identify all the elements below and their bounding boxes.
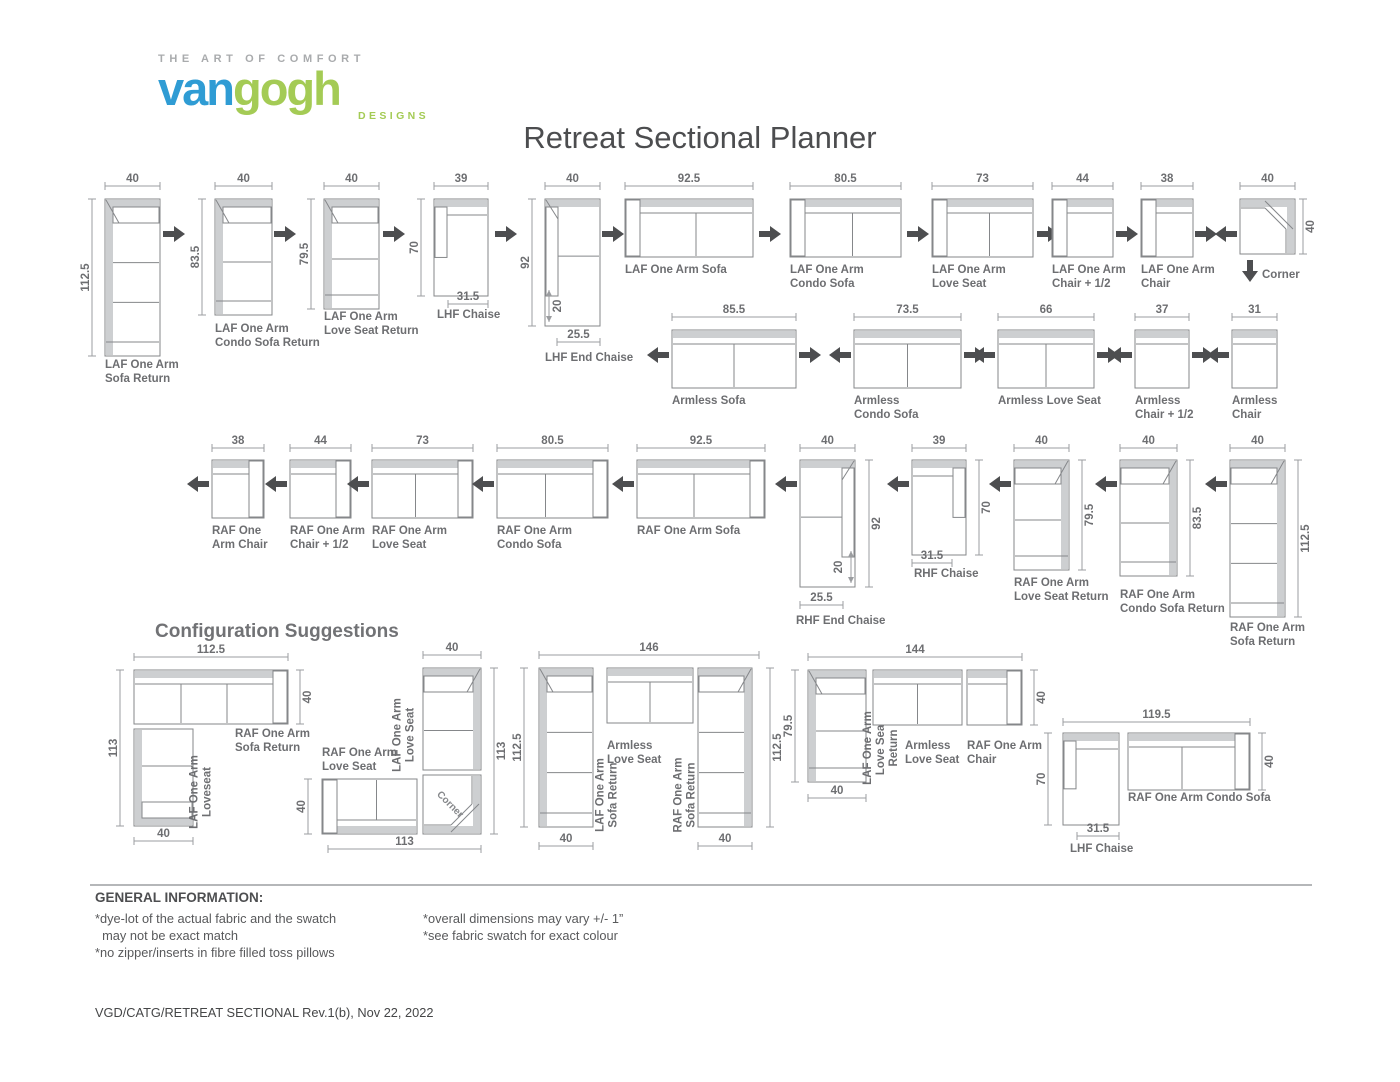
piece-label: RAF One Arm Condo Sofa: [1128, 792, 1271, 804]
piece-label: Chair: [1141, 278, 1171, 290]
flow-arrow-left-icon: [187, 476, 209, 492]
piece-label: LAF One Arm Sofa: [625, 264, 727, 276]
dimension-label: 44: [1076, 173, 1089, 185]
dimension-label: 40: [566, 173, 579, 185]
piece-raf-one-arm-chair: 38RAF OneArm Chair: [187, 435, 268, 551]
dimension-label: 144: [905, 644, 925, 656]
piece-label: Love Seat: [905, 754, 959, 766]
piece-label: Love Seat: [875, 721, 887, 775]
flow-arrow-left-icon: [829, 347, 851, 363]
dimension-label: 38: [1161, 173, 1174, 185]
piece-label: RAF One Arm: [322, 747, 397, 759]
piece-label: LAF One Arm: [932, 264, 1006, 276]
piece-label: Love Seat Return: [1014, 591, 1109, 603]
dimension-label: 73: [416, 435, 429, 447]
piece-armless-condo-sofa: 73.5ArmlessCondo Sofa: [829, 304, 986, 421]
dimension-label: 70: [981, 501, 993, 514]
flow-arrow-right-icon: [907, 226, 929, 242]
dimension-label: 112.5: [512, 733, 524, 762]
piece-raf-one-arm-condo-sofa: 80.5RAF One ArmCondo Sofa: [472, 435, 608, 551]
piece-label: Condo Sofa: [854, 409, 919, 421]
dimension-label: 31.5: [921, 550, 944, 562]
piece-cfg4-raf-chair: 40RAF One ArmChair: [967, 670, 1048, 766]
dimension-label: 40: [1035, 435, 1048, 447]
info-line: *no zipper/inserts in fibre filled toss …: [95, 944, 336, 961]
dimension-label: 80.5: [834, 173, 857, 185]
piece-cfg5-raf-condo-sofa: 40RAF One Arm Condo Sofa: [1128, 733, 1276, 804]
dimension-label: 40: [302, 691, 314, 704]
piece-label: LAF One Arm: [862, 711, 874, 785]
flow-arrow-left-icon: [775, 476, 797, 492]
dimension-label: 92: [871, 517, 883, 530]
piece-label: Chair + 1/2: [290, 539, 349, 551]
flow-arrow-left-icon: [887, 476, 909, 492]
dimension-label: 20: [552, 300, 564, 313]
piece-raf-one-arm-love-seat-return: 4079.5RAF One ArmLove Seat Return: [989, 435, 1109, 603]
dimension-label: 113: [496, 742, 508, 761]
dimension-label: 70: [1036, 773, 1048, 786]
piece-label: Sofa Return: [105, 373, 170, 385]
flow-arrow-right-icon: [274, 226, 296, 242]
piece-label: Love Seat: [405, 708, 417, 762]
flow-arrow-down-icon: [1242, 260, 1258, 282]
dimension-label: 40: [446, 642, 459, 654]
dimension-label: 92: [520, 256, 532, 269]
flow-arrow-left-icon: [1215, 226, 1237, 242]
piece-label: Condo Sofa: [790, 278, 855, 290]
piece-laf-one-arm-love-seat-return: 4079.5LAF One ArmLove Seat Return: [299, 173, 419, 337]
piece-label: Love Seat: [607, 754, 661, 766]
dimension-label: 83.5: [1192, 506, 1204, 529]
piece-label: RAF One Arm Sofa: [637, 525, 741, 537]
dimension-label: 40: [1036, 691, 1048, 704]
configuration-suggestions-heading: Configuration Suggestions: [155, 621, 399, 642]
piece-corner: 4040Corner: [1240, 173, 1317, 282]
piece-label: Condo Sofa Return: [215, 337, 320, 349]
piece-label: LHF End Chaise: [545, 352, 633, 364]
piece-label: Condo Sofa: [497, 539, 562, 551]
dimension-label: 112.5: [197, 644, 226, 656]
info-line: *overall dimensions may vary +/- 1”: [423, 910, 623, 927]
piece-label: LAF One Arm: [215, 323, 289, 335]
piece-cfg1-laf-loveseat: LAF One ArmLoveseat: [134, 729, 214, 829]
piece-label: LHF Chaise: [1070, 843, 1133, 855]
piece-rhf-end-chaise: 40922025.5RHF End Chaise: [775, 435, 885, 627]
flow-arrow-left-icon: [472, 476, 494, 492]
piece-armless-chair: 31ArmlessChair: [1207, 304, 1277, 421]
dimension-label: 40: [1261, 173, 1274, 185]
flow-arrow-left-icon: [1110, 347, 1132, 363]
dimension-label: 40: [1264, 755, 1276, 768]
piece-label: RHF End Chaise: [796, 615, 885, 627]
piece-label: Chair + 1/2: [1135, 409, 1194, 421]
piece-label: RAF One Arm: [1120, 589, 1195, 601]
piece-label: LAF One Arm: [105, 359, 179, 371]
piece-label: Sofa Return: [235, 742, 300, 754]
dimension-label: 79.5: [299, 242, 311, 265]
dimension-label: 40: [1251, 435, 1264, 447]
flow-arrow-right-icon: [383, 226, 405, 242]
dimension-label: 40: [1305, 220, 1317, 233]
dimension-label: 40: [719, 833, 732, 845]
dimension-label: 146: [639, 642, 658, 654]
dimension-label: 40: [157, 828, 170, 840]
piece-label: Love Seat: [372, 539, 426, 551]
flow-arrow-left-icon: [1205, 476, 1227, 492]
dimension-label: 25.5: [567, 329, 590, 341]
dimension-label: 112.5: [1300, 524, 1312, 553]
dimension-label: 40: [831, 785, 844, 797]
info-line: *dye-lot of the actual fabric and the sw…: [95, 910, 336, 927]
piece-label: Armless: [1232, 395, 1277, 407]
piece-label: LAF One Arm: [1141, 264, 1215, 276]
dimension-label: 31.5: [1087, 823, 1110, 835]
piece-laf-one-arm-sofa-return: 40112.5LAF One ArmSofa Return: [80, 173, 185, 385]
dimension-label: 92.5: [678, 173, 701, 185]
piece-label: RAF One Arm: [235, 728, 310, 740]
piece-raf-one-arm-sofa: 92.5RAF One Arm Sofa: [612, 435, 765, 537]
piece-cfg3-armless-love-seat: ArmlessLove Seat: [607, 668, 693, 766]
dimension-label: 113: [395, 836, 414, 848]
piece-label: Armless: [854, 395, 899, 407]
dimension-label: 85.5: [723, 304, 746, 316]
dimension-label: 40: [126, 173, 139, 185]
piece-label: Loveseat: [202, 767, 214, 817]
flow-arrow-left-icon: [1207, 347, 1229, 363]
dimension-label: 38: [232, 435, 245, 447]
dimension-label: 83.5: [190, 245, 202, 268]
dimension-label: 31.5: [457, 291, 480, 303]
piece-laf-one-arm-condo-sofa: 80.5LAF One ArmCondo Sofa: [790, 173, 929, 290]
piece-cfg2-corner: Corner: [423, 775, 481, 834]
flow-arrow-right-icon: [163, 226, 185, 242]
piece-label: Sofa Return: [608, 762, 620, 827]
dimension-label: 112.5: [80, 263, 92, 292]
piece-label: RAF One Arm: [497, 525, 572, 537]
piece-label: Love Seat: [932, 278, 986, 290]
piece-label: LHF Chaise: [437, 309, 500, 321]
piece-laf-one-arm-sofa: 92.5LAF One Arm Sofa: [625, 173, 781, 276]
flow-arrow-right-icon: [602, 226, 624, 242]
piece-label: Armless Sofa: [672, 395, 746, 407]
dimension-label: 37: [1156, 304, 1169, 316]
document-revision-footer: VGD/CATG/RETREAT SECTIONAL Rev.1(b), Nov…: [95, 1005, 434, 1020]
piece-raf-one-arm-chair-half: 44RAF One ArmChair + 1/2: [265, 435, 365, 551]
piece-label: RAF One Arm: [1230, 622, 1305, 634]
dimension-label: 39: [933, 435, 946, 447]
piece-raf-one-arm-love-seat: 73RAF One ArmLove Seat: [347, 435, 473, 551]
piece-label: LAF One Arm: [189, 755, 201, 829]
dimension-label: 40: [296, 800, 308, 813]
flow-arrow-right-icon: [1195, 226, 1217, 242]
flow-arrow-right-icon: [799, 347, 821, 363]
dimension-label: 40: [237, 173, 250, 185]
dimension-label: 79.5: [783, 714, 795, 737]
dimension-label: 31: [1248, 304, 1261, 316]
piece-laf-one-arm-chair: 38LAF One ArmChair: [1141, 173, 1237, 290]
piece-label: LAF One Arm: [1052, 264, 1126, 276]
general-info-column-2: *overall dimensions may vary +/- 1”*see …: [423, 910, 623, 944]
piece-armless-chair-half: 37ArmlessChair + 1/2: [1110, 304, 1214, 421]
dimension-label: 40: [821, 435, 834, 447]
piece-label: Armless: [607, 740, 652, 752]
piece-label: RAF One Arm: [1014, 577, 1089, 589]
piece-raf-one-arm-condo-sofa-return: 4083.5RAF One ArmCondo Sofa Return: [1095, 435, 1225, 615]
piece-label: LAF One Arm: [595, 758, 607, 832]
piece-label: Condo Sofa Return: [1120, 603, 1225, 615]
piece-laf-one-arm-chair-half: 44LAF One ArmChair + 1/2: [1052, 173, 1138, 290]
info-line: *see fabric swatch for exact colour: [423, 927, 623, 944]
flow-arrow-right-icon: [1116, 226, 1138, 242]
flow-arrow-right-icon: [759, 226, 781, 242]
divider-rule: [90, 884, 1312, 886]
piece-label: RHF Chaise: [914, 568, 979, 580]
flow-arrow-left-icon: [989, 476, 1011, 492]
info-line: may not be exact match: [95, 927, 336, 944]
dimension-label: 92.5: [690, 435, 713, 447]
piece-label: Armless Love Seat: [998, 395, 1101, 407]
general-info-heading: GENERAL INFORMATION:: [95, 890, 263, 905]
piece-label: Corner: [1262, 269, 1300, 281]
piece-label: Chair: [967, 754, 997, 766]
retreat-sectional-planner-sheet: THE ART OF COMFORT vangogh DESIGNS Retre…: [0, 0, 1400, 1082]
dimension-label: 66: [1040, 304, 1053, 316]
dimension-label: 73: [976, 173, 989, 185]
piece-label: LAF One Arm: [324, 311, 398, 323]
piece-label: LAF One Arm: [392, 698, 404, 772]
dimension-label: 40: [345, 173, 358, 185]
dimension-label: 39: [455, 173, 468, 185]
dimension-label: 40: [560, 833, 573, 845]
dimension-label: 73.5: [896, 304, 919, 316]
piece-lhf-end-chaise: 40922025.5LHF End Chaise: [520, 173, 633, 364]
piece-rhf-chaise: 397031.5RHF Chaise: [887, 435, 993, 580]
piece-label: Chair + 1/2: [1052, 278, 1111, 290]
piece-label: LAF One Arm: [790, 264, 864, 276]
piece-label: Love Seat Return: [324, 325, 419, 337]
piece-armless-love-seat: 66Armless Love Seat: [973, 304, 1119, 407]
piece-armless-sofa: 85.5Armless Sofa: [647, 304, 821, 407]
dimension-label: 119.5: [1142, 709, 1171, 721]
flow-arrow-right-icon: [495, 226, 517, 242]
flow-arrow-left-icon: [612, 476, 634, 492]
general-info-column-1: *dye-lot of the actual fabric and the sw…: [95, 910, 336, 961]
dimension-label: 70: [409, 241, 421, 254]
piece-label: Sofa Return: [686, 762, 698, 827]
piece-label: RAF One Arm: [967, 740, 1042, 752]
dimension-label: 44: [314, 435, 327, 447]
piece-label: Armless: [1135, 395, 1180, 407]
dimension-label: 40: [1142, 435, 1155, 447]
dimension-label: 113: [108, 739, 120, 758]
flow-arrow-left-icon: [265, 476, 287, 492]
piece-label: Return: [888, 729, 900, 766]
piece-label: RAF One Arm: [372, 525, 447, 537]
flow-arrow-left-icon: [1095, 476, 1117, 492]
dimension-label: 25.5: [810, 592, 833, 604]
flow-arrow-left-icon: [647, 347, 669, 363]
piece-lhf-chaise: 397031.5LHF Chaise: [409, 173, 517, 321]
piece-raf-one-arm-sofa-return: 40112.5RAF One ArmSofa Return: [1205, 435, 1312, 648]
piece-label: RAF One Arm: [673, 758, 685, 833]
piece-label: Love Seat: [322, 761, 376, 773]
piece-label: Armless: [905, 740, 950, 752]
dimension-label: 80.5: [541, 435, 564, 447]
piece-label: Sofa Return: [1230, 636, 1295, 648]
piece-label: Chair: [1232, 409, 1262, 421]
dimension-label: 20: [833, 561, 845, 574]
piece-laf-one-arm-love-seat: 73LAF One ArmLove Seat: [932, 173, 1059, 290]
dimension-label: 79.5: [1084, 503, 1096, 526]
piece-label: RAF One: [212, 525, 261, 537]
piece-label: Arm Chair: [212, 539, 268, 551]
piece-label: RAF One Arm: [290, 525, 365, 537]
